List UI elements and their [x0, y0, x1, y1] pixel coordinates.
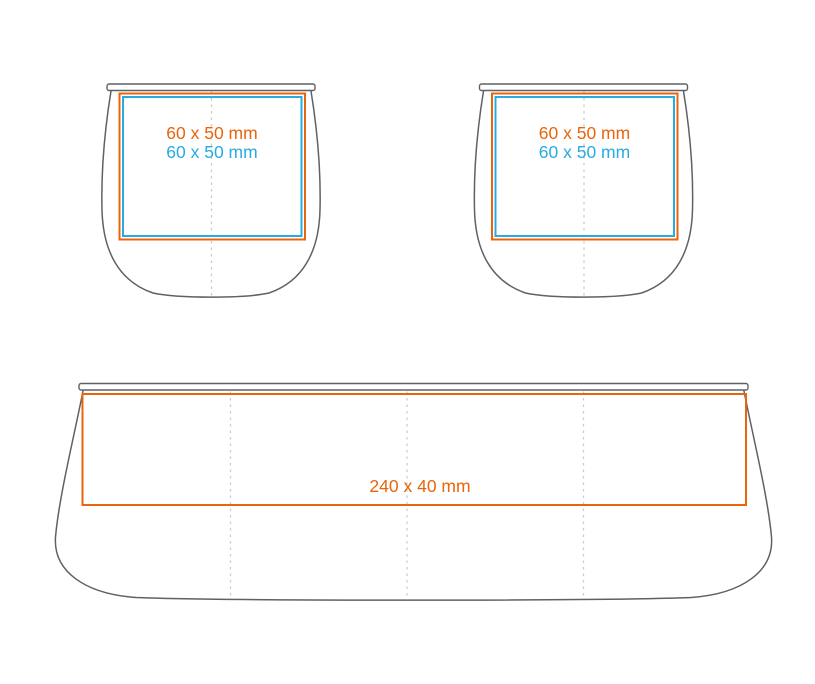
cup-right-label-secondary: 60 x 50 mm — [539, 142, 630, 162]
cup-right-outline — [474, 91, 692, 297]
cup-right-label-primary: 60 x 50 mm — [539, 123, 630, 143]
cup-right-print-area-secondary — [496, 97, 675, 236]
cup-left-view: 60 x 50 mm 60 x 50 mm — [102, 84, 320, 297]
cup-left-label-primary: 60 x 50 mm — [166, 123, 257, 143]
wrap-label-primary: 240 x 40 mm — [369, 476, 470, 496]
cup-left-print-area-secondary — [123, 97, 302, 236]
cup-right-print-area-primary — [492, 94, 678, 240]
cup-right-rim — [480, 84, 688, 91]
cup-left-print-area-primary — [120, 94, 306, 240]
wrap-view: 240 x 40 mm — [55, 384, 771, 601]
cup-left-label-secondary: 60 x 50 mm — [166, 142, 257, 162]
cup-left-rim — [107, 84, 315, 91]
cup-left-outline — [102, 91, 320, 297]
cup-right-view: 60 x 50 mm 60 x 50 mm — [474, 84, 692, 297]
print-area-diagram: 60 x 50 mm 60 x 50 mm 60 x 50 mm 60 x 50… — [0, 0, 815, 684]
wrap-rim — [79, 384, 748, 391]
diagram-svg: 60 x 50 mm 60 x 50 mm 60 x 50 mm 60 x 50… — [0, 0, 815, 684]
